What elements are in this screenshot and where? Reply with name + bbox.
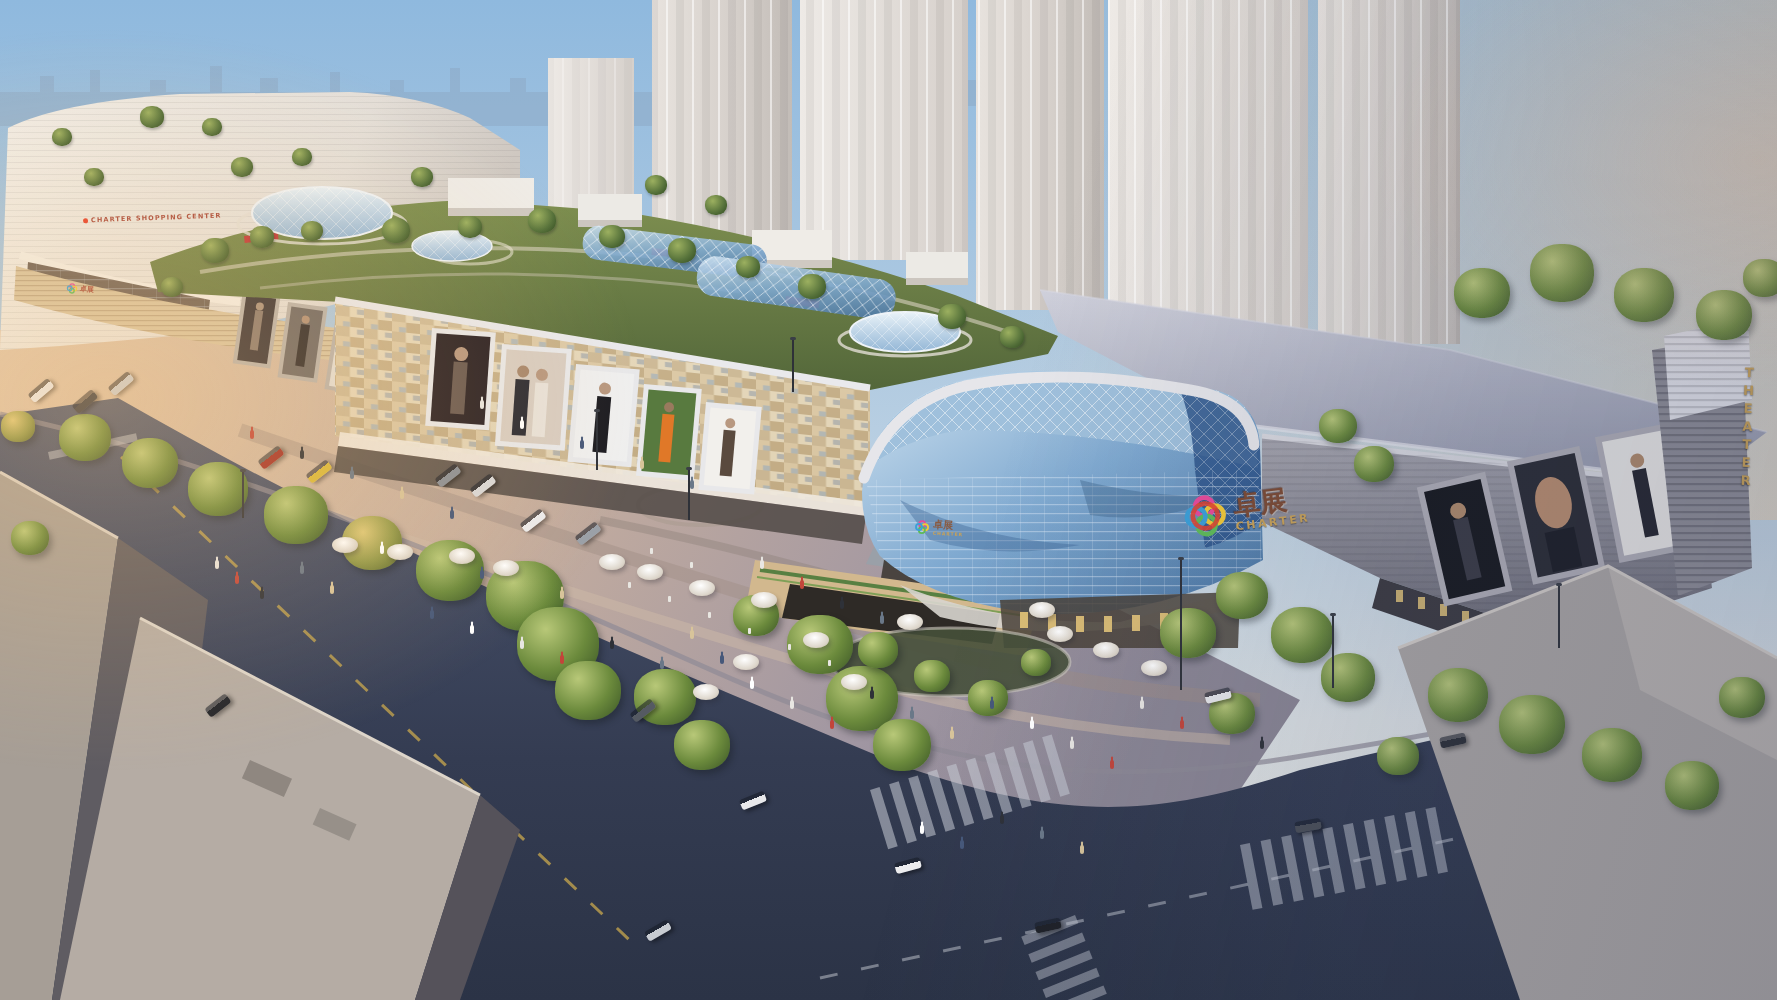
theater-letter: E <box>1743 402 1752 415</box>
charter-logo-icon <box>914 519 931 536</box>
theater-letter: E <box>1742 456 1751 469</box>
left-fascia-logo: 卓展 <box>66 282 95 296</box>
left-fascia-logo-text: 卓展 <box>80 284 95 295</box>
mid-logo-cn: 卓展 <box>933 520 964 532</box>
charter-dot-icon <box>83 218 88 223</box>
charter-logo-icon <box>1180 490 1231 541</box>
theater-letter: H <box>1743 384 1754 397</box>
theater-letter: T <box>1745 366 1754 379</box>
mid-entrance-logo: 卓展 CHARTER <box>914 519 964 538</box>
charter-logo-icon <box>66 282 79 295</box>
theater-letter: A <box>1742 420 1753 433</box>
render-canvas <box>0 0 1777 1000</box>
theater-letter: R <box>1740 474 1750 487</box>
theater-letter: T <box>1742 438 1751 451</box>
scene: CHARTER SHOPPING CENTER 卓展 卓展 CHARTER 卓展… <box>0 0 1777 1000</box>
